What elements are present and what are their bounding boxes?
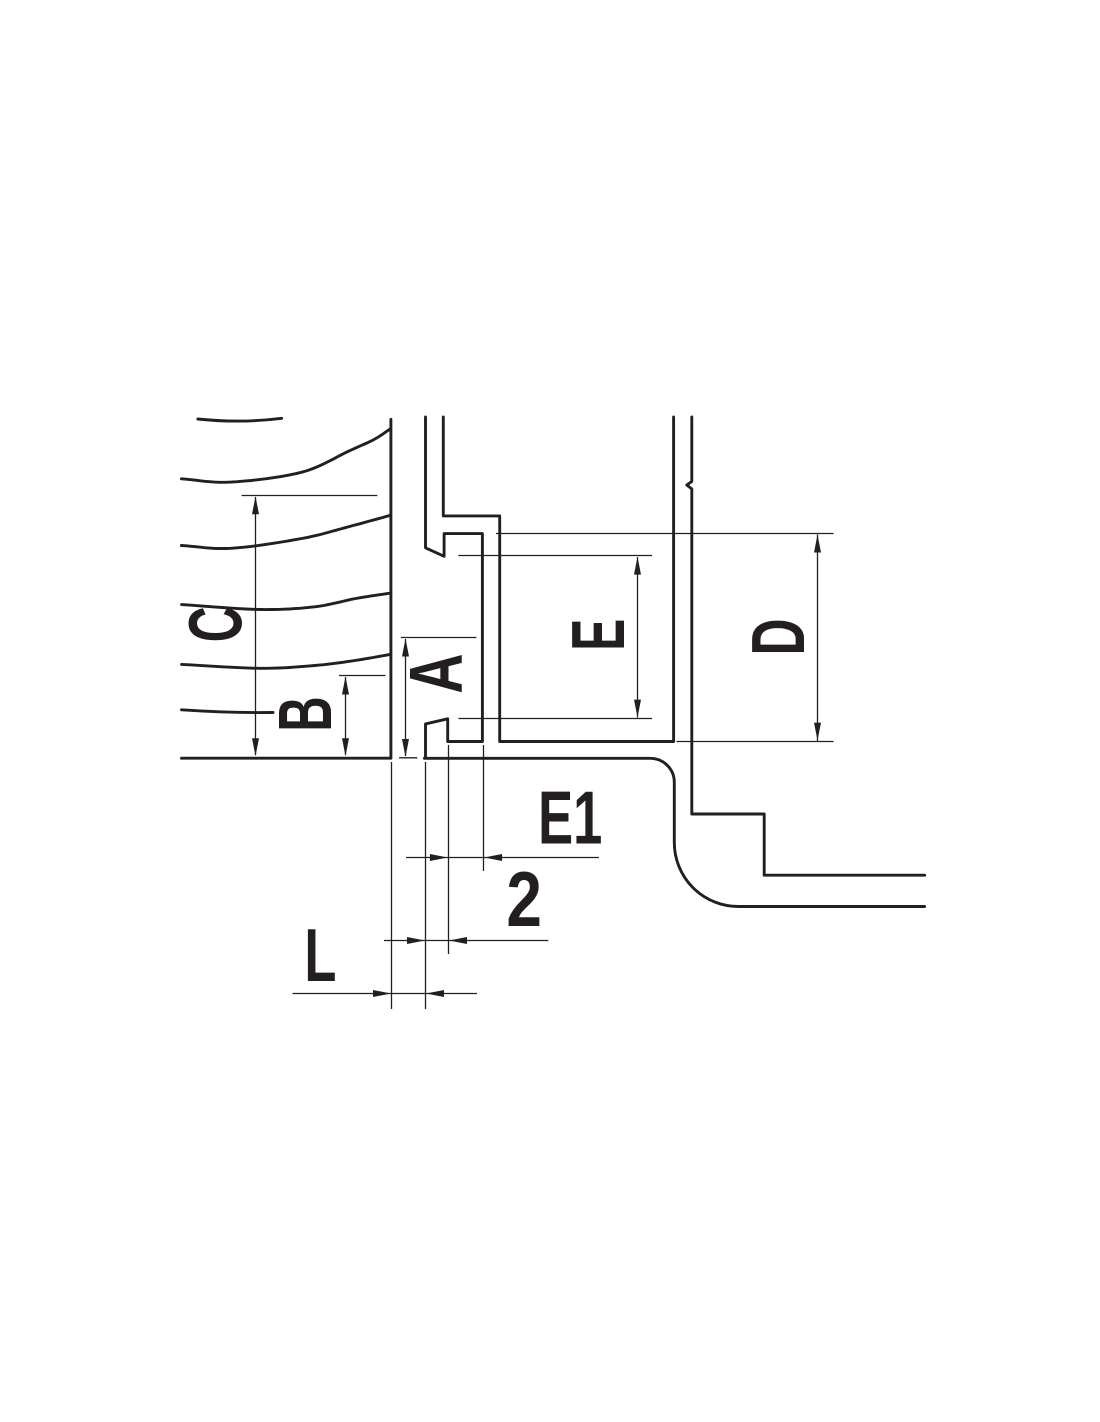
svg-text:B: B: [265, 696, 348, 731]
svg-text:E1: E1: [538, 775, 602, 860]
svg-text:D: D: [736, 619, 820, 656]
svg-text:A: A: [393, 654, 477, 694]
svg-text:C: C: [174, 607, 258, 643]
svg-text:L: L: [304, 913, 336, 998]
svg-text:2: 2: [506, 856, 542, 943]
svg-text:E: E: [557, 619, 640, 651]
